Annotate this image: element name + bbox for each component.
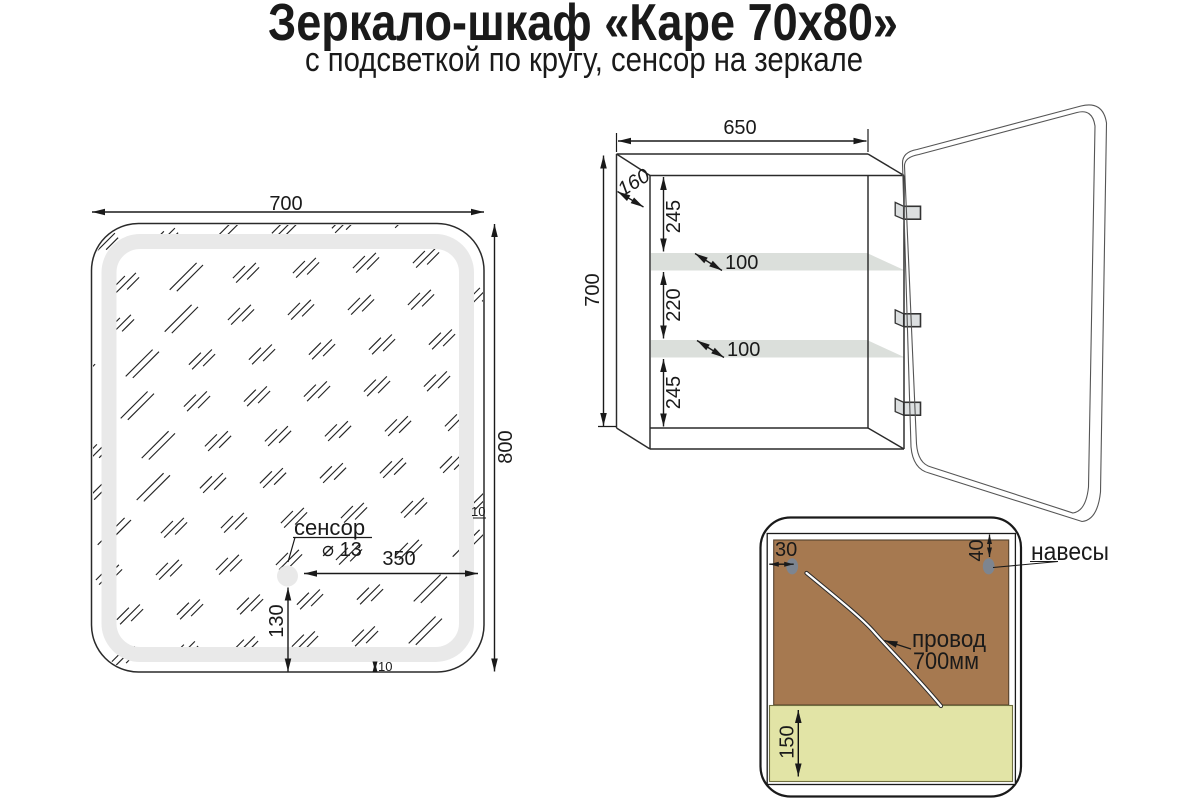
svg-text:650: 650 [723,117,756,139]
svg-text:245: 245 [663,376,685,409]
svg-text:40: 40 [966,539,988,561]
svg-text:100: 100 [725,252,758,274]
svg-text:с подсветкой по кругу, сенсор: с подсветкой по кругу, сенсор на зеркале [305,41,863,79]
svg-text:220: 220 [663,288,685,321]
svg-text:⌀ 13: ⌀ 13 [322,539,362,561]
svg-text:10: 10 [378,659,392,674]
svg-text:245: 245 [663,200,685,233]
svg-text:700мм: 700мм [913,648,979,675]
svg-text:350: 350 [382,548,415,570]
svg-text:700: 700 [582,273,604,306]
svg-text:700: 700 [269,193,302,215]
svg-text:800: 800 [495,430,517,463]
svg-text:10: 10 [471,504,485,519]
svg-text:100: 100 [727,339,760,361]
svg-text:130: 130 [266,604,288,637]
svg-text:150: 150 [777,725,799,758]
svg-text:30: 30 [775,539,797,561]
svg-text:сенсор: сенсор [294,515,365,540]
